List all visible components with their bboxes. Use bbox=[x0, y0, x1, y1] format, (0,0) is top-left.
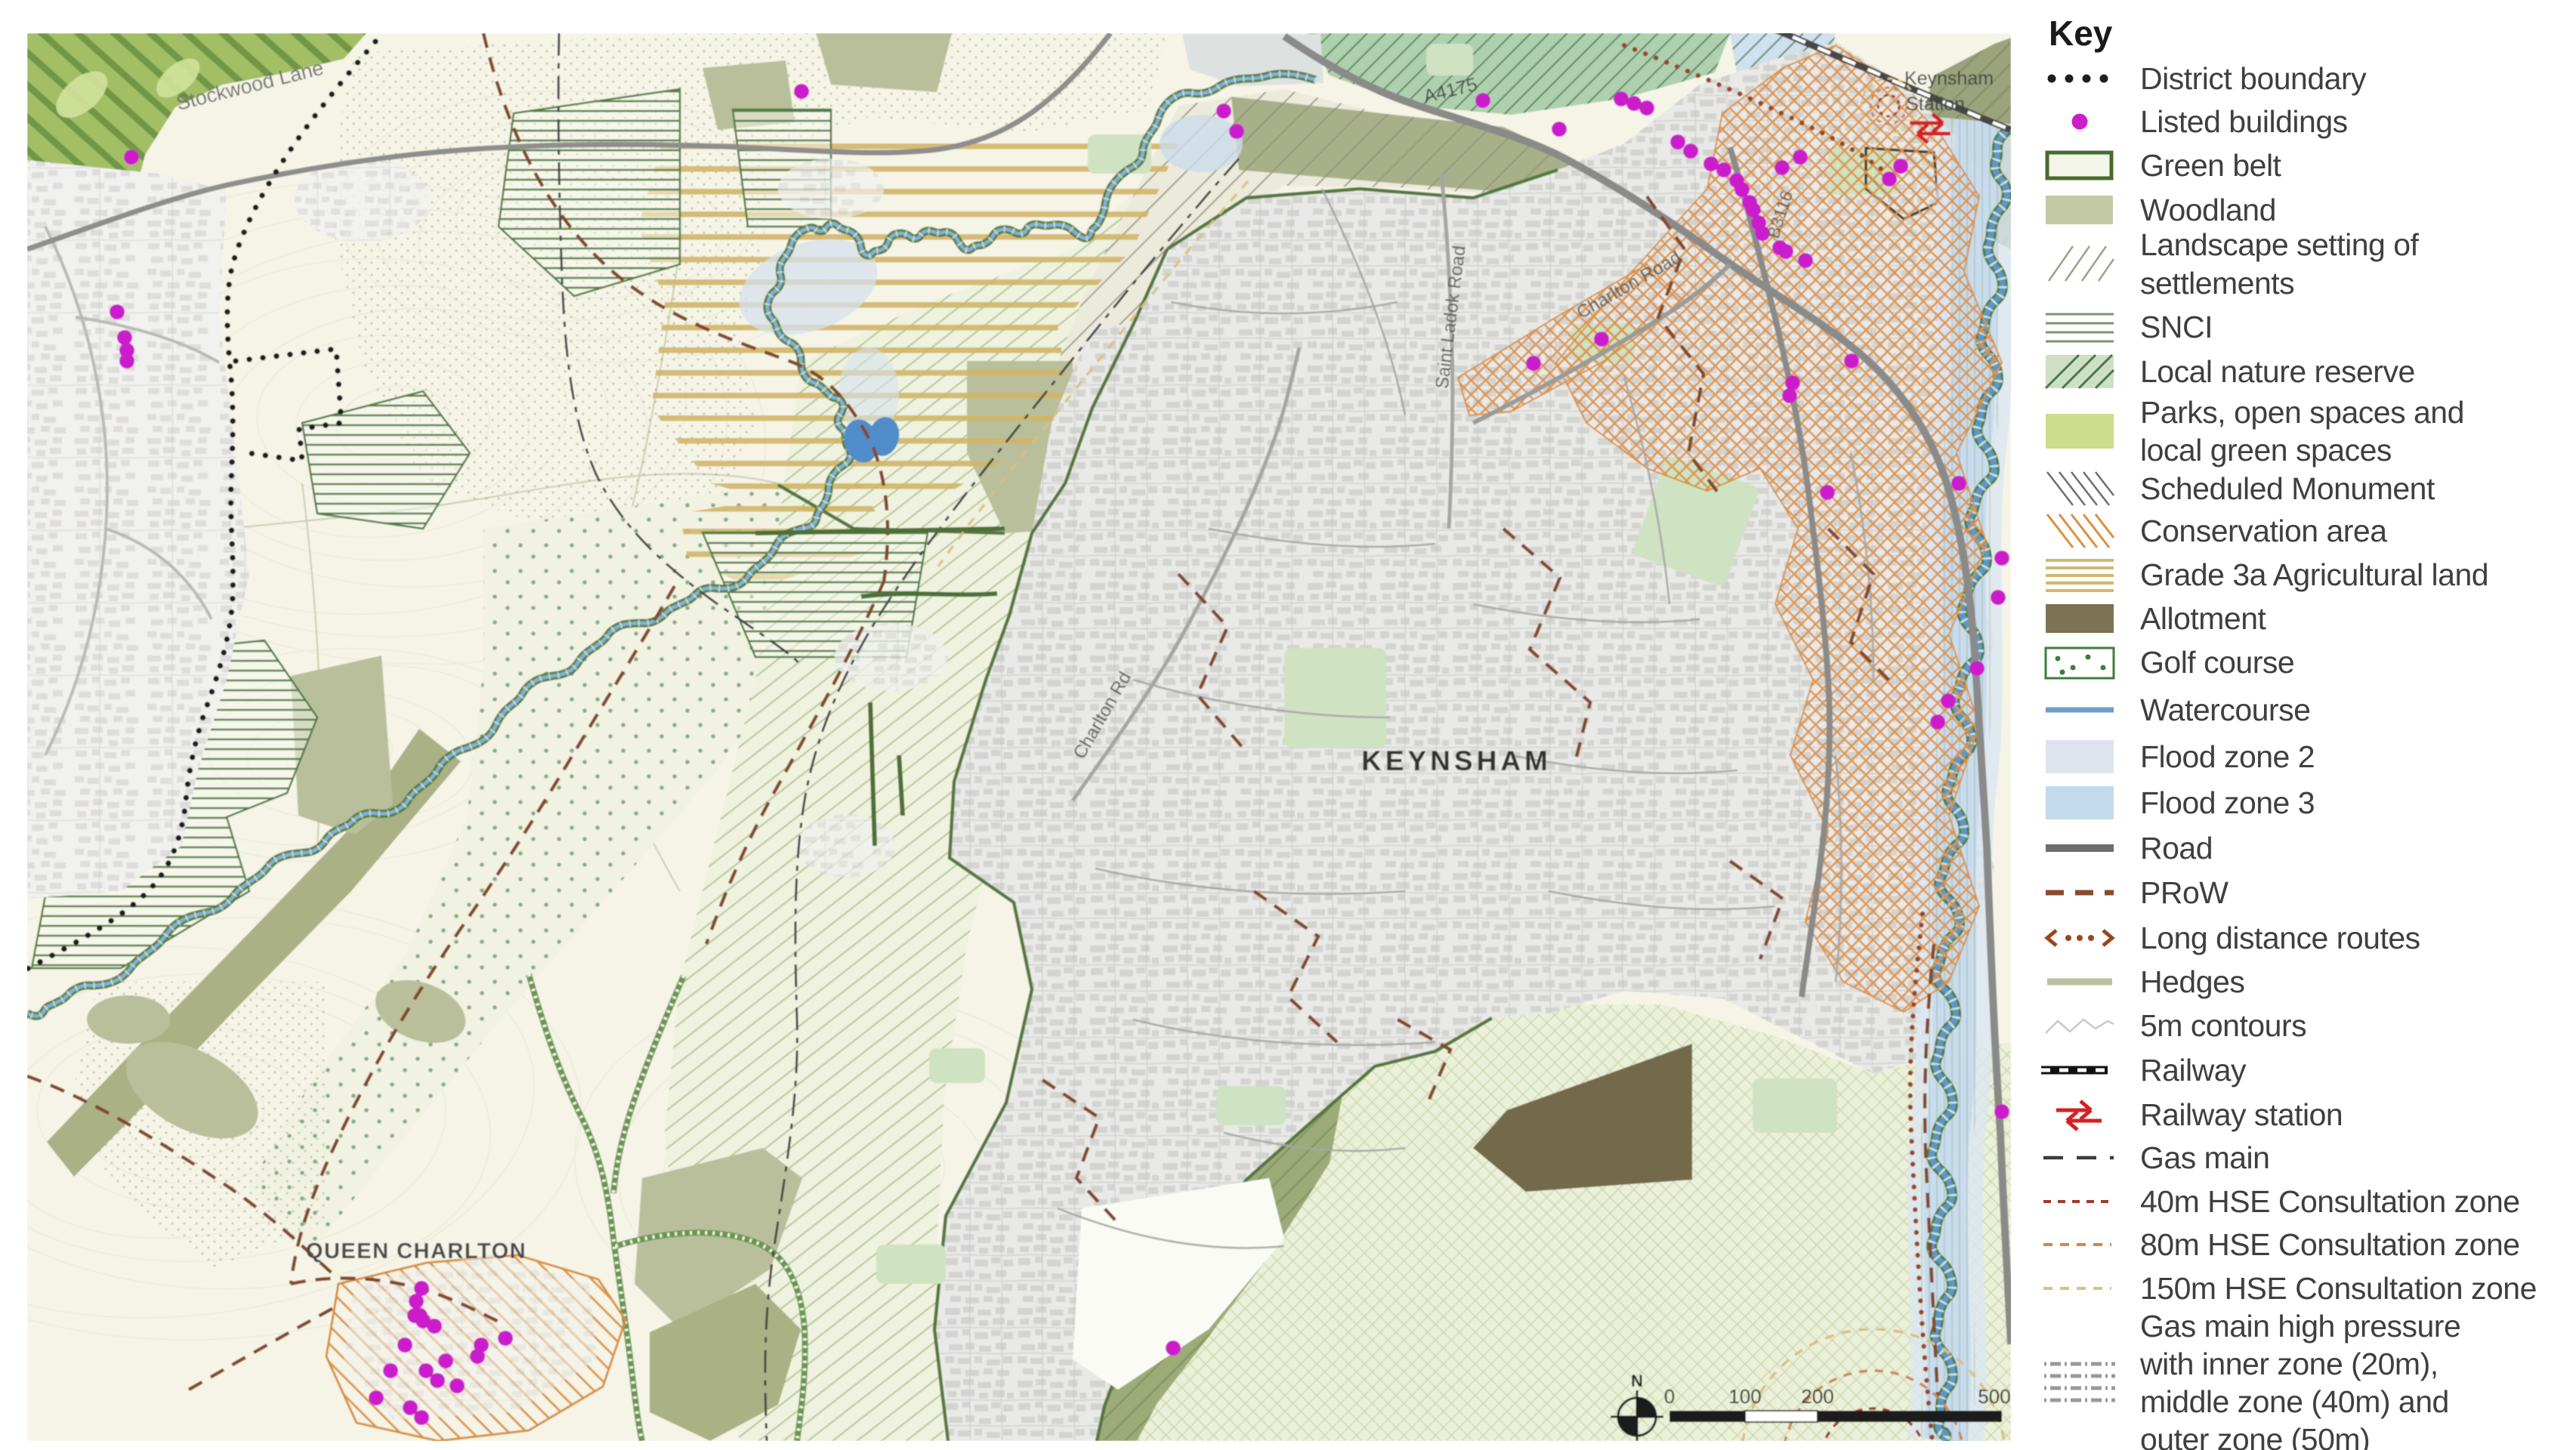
svg-text:150m HSE Consultation zone: 150m HSE Consultation zone bbox=[2140, 1271, 2537, 1306]
svg-text:Woodland: Woodland bbox=[2140, 193, 2276, 227]
svg-text:PRoW: PRoW bbox=[2140, 875, 2229, 910]
svg-text:SNCI: SNCI bbox=[2140, 310, 2213, 344]
svg-text:N: N bbox=[1631, 1371, 1643, 1390]
svg-text:with inner zone (20m),: with inner zone (20m), bbox=[2139, 1347, 2439, 1381]
svg-text:Listed buildings: Listed buildings bbox=[2140, 104, 2348, 139]
svg-text:Road: Road bbox=[2140, 831, 2213, 865]
svg-text:0: 0 bbox=[1664, 1385, 1675, 1408]
svg-text:Scheduled Monument: Scheduled Monument bbox=[2140, 471, 2435, 506]
svg-text:Key: Key bbox=[2049, 14, 2113, 53]
svg-text:Flood zone 3: Flood zone 3 bbox=[2140, 785, 2315, 820]
svg-text:Allotment: Allotment bbox=[2140, 601, 2267, 636]
svg-text:Railway station: Railway station bbox=[2140, 1097, 2343, 1132]
svg-text:40m HSE Consultation zone: 40m HSE Consultation zone bbox=[2140, 1184, 2520, 1219]
svg-text:local green spaces: local green spaces bbox=[2140, 433, 2392, 467]
svg-text:Railway: Railway bbox=[2140, 1053, 2247, 1087]
svg-text:KEYNSHAM: KEYNSHAM bbox=[1361, 745, 1552, 776]
svg-text:Golf course: Golf course bbox=[2140, 645, 2294, 680]
svg-text:Keynsham: Keynsham bbox=[1904, 68, 1994, 89]
svg-text:80m HSE Consultation zone: 80m HSE Consultation zone bbox=[2140, 1227, 2520, 1262]
svg-text:Conservation area: Conservation area bbox=[2140, 514, 2387, 548]
svg-text:Gas main high pressure: Gas main high pressure bbox=[2140, 1309, 2460, 1344]
svg-text:5m contours: 5m contours bbox=[2140, 1008, 2306, 1043]
svg-text:middle zone (40m) and: middle zone (40m) and bbox=[2140, 1384, 2449, 1419]
svg-text:Landscape setting of: Landscape setting of bbox=[2140, 227, 2419, 262]
svg-text:Long distance routes: Long distance routes bbox=[2140, 921, 2420, 955]
svg-text:outer zone (50m): outer zone (50m) bbox=[2140, 1422, 2370, 1450]
svg-text:Grade 3a Agricultural land: Grade 3a Agricultural land bbox=[2140, 557, 2488, 592]
svg-text:Flood zone 2: Flood zone 2 bbox=[2140, 739, 2315, 774]
svg-text:500: 500 bbox=[1978, 1385, 2010, 1408]
svg-text:Green belt: Green belt bbox=[2140, 148, 2282, 183]
svg-text:Hedges: Hedges bbox=[2140, 964, 2244, 999]
svg-text:Parks, open spaces and: Parks, open spaces and bbox=[2140, 395, 2464, 430]
svg-text:100: 100 bbox=[1728, 1385, 1761, 1408]
svg-text:settlements: settlements bbox=[2140, 266, 2294, 301]
svg-text:District boundary: District boundary bbox=[2140, 61, 2367, 96]
svg-text:Local nature reserve: Local nature reserve bbox=[2140, 354, 2415, 389]
svg-text:200: 200 bbox=[1801, 1385, 1833, 1408]
svg-text:Station: Station bbox=[1906, 94, 1965, 115]
svg-text:Watercourse: Watercourse bbox=[2140, 693, 2310, 727]
svg-text:QUEEN CHARLTON: QUEEN CHARLTON bbox=[306, 1239, 527, 1263]
svg-text:Gas main: Gas main bbox=[2140, 1140, 2269, 1175]
